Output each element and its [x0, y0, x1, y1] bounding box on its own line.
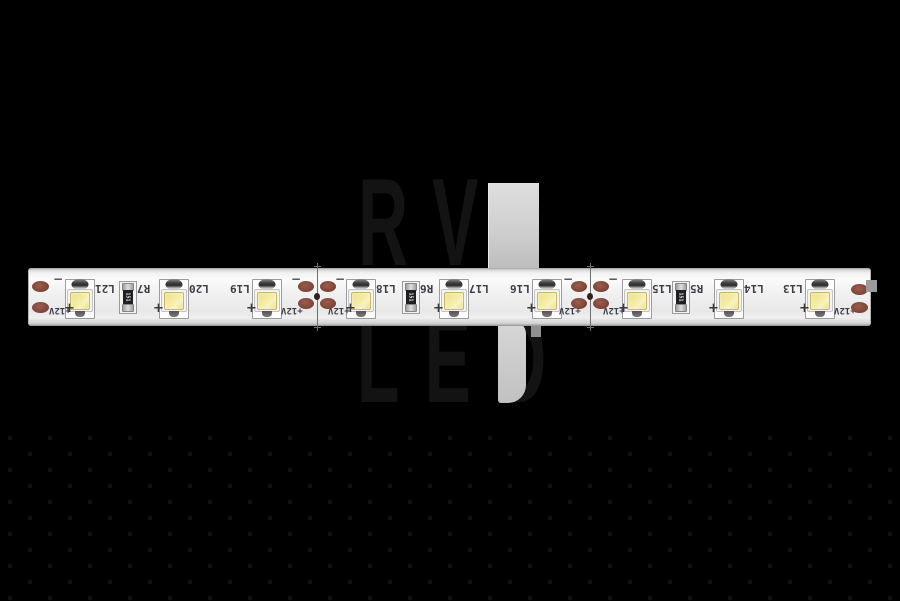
resistor-marking: 151 [678, 292, 684, 301]
led-bottom-contact [724, 311, 734, 317]
solder-pad [571, 281, 587, 292]
led-phosphor [164, 292, 184, 310]
plus-marking: + [246, 301, 257, 316]
plus-marking: + [345, 301, 356, 316]
led-package [534, 289, 560, 312]
led-phosphor [627, 292, 647, 310]
resistor-r7: 151 [119, 281, 137, 314]
resistor-body: 151 [123, 290, 133, 304]
watermark-d-highlight [498, 320, 526, 403]
solder-pad [298, 281, 314, 292]
resistor-marking: 151 [408, 292, 414, 301]
minus-marking: − [53, 272, 63, 286]
resistor-body: 151 [406, 290, 416, 304]
resistor-marking: 151 [125, 292, 131, 301]
resistor-cap [675, 304, 687, 312]
led-bottom-contact [262, 311, 272, 317]
plus-marking: + [526, 301, 537, 316]
resistor-label: R7 [137, 282, 150, 295]
plus-marking: + [433, 301, 444, 316]
solder-pad [593, 298, 609, 309]
led-phosphor [719, 292, 739, 310]
led-bottom-contact [632, 311, 642, 317]
led-label: L14 [744, 282, 764, 295]
minus-marking: − [608, 272, 618, 286]
led-bottom-contact [542, 311, 552, 317]
watermark-highlight-block [488, 183, 539, 269]
led-package [807, 289, 833, 312]
resistor-cap [122, 304, 134, 312]
solder-pad [593, 281, 609, 292]
minus-marking: − [335, 272, 345, 286]
resistor-body: 151 [676, 290, 686, 304]
led-bottom-contact [75, 311, 85, 317]
led-label: L17 [469, 282, 489, 295]
watermark-line-1: RV [358, 161, 504, 285]
led-bottom-contact [815, 311, 825, 317]
led-label: L18 [376, 282, 396, 295]
led-label: L19 [230, 282, 250, 295]
pad-center-dot [314, 293, 320, 300]
resistor-label: R6 [420, 282, 433, 295]
led-package [161, 289, 187, 312]
resistor-r5: 151 [672, 281, 690, 314]
led-label: L15 [652, 282, 672, 295]
led-bottom-contact [356, 311, 366, 317]
solder-pad [320, 281, 336, 292]
led-label: L13 [783, 282, 803, 295]
led-phosphor [537, 292, 557, 310]
led-label: L16 [510, 282, 530, 295]
led-package [254, 289, 280, 312]
plus-marking: + [618, 301, 629, 316]
led-label: L21 [95, 282, 115, 295]
led-label: L20 [189, 282, 209, 295]
transparency-dot-pattern [0, 430, 900, 601]
led-strip-product-photo: RV LED L21 L20 L19 L18 L17 L16 L15 L14 L… [0, 0, 900, 601]
solder-pad [32, 281, 49, 292]
plus-marking: + [799, 301, 810, 316]
solder-pad [851, 302, 868, 313]
plus-marking: + [708, 301, 719, 316]
plus-marking: + [64, 301, 75, 316]
solder-pad [298, 298, 314, 309]
led-phosphor [257, 292, 277, 310]
solder-pad [320, 298, 336, 309]
strip-end-notch [866, 280, 877, 292]
led-bottom-contact [449, 311, 459, 317]
led-phosphor [444, 292, 464, 310]
resistor-r6: 151 [402, 281, 420, 314]
led-package [716, 289, 742, 312]
plus-marking: + [153, 301, 164, 316]
led-phosphor [810, 292, 830, 310]
led-bottom-contact [169, 311, 179, 317]
led-package [441, 289, 467, 312]
led-strip: L21 L20 L19 L18 L17 L16 L15 L14 L13 151 … [28, 268, 871, 326]
pad-center-dot [587, 293, 593, 300]
solder-pad [571, 298, 587, 309]
solder-pad [32, 302, 49, 313]
resistor-label: R5 [690, 282, 703, 295]
resistor-cap [405, 304, 417, 312]
